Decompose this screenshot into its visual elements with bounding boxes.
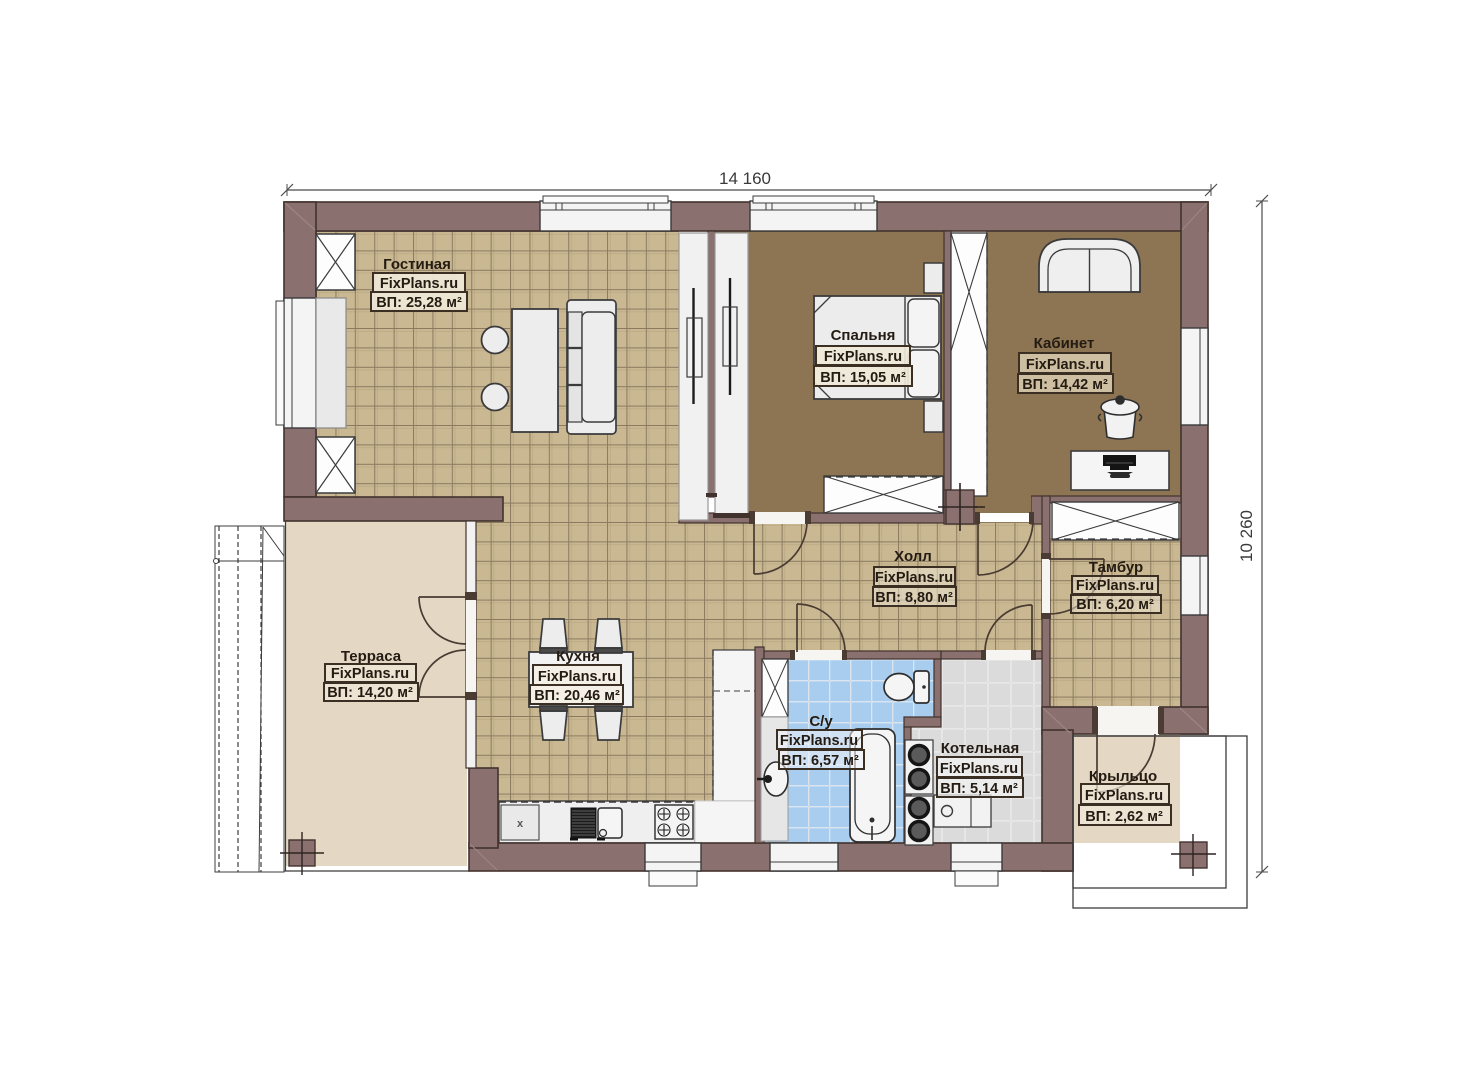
svg-text:ВП: 8,80 м²: ВП: 8,80 м² — [875, 590, 953, 606]
svg-text:Крыльцо: Крыльцо — [1089, 768, 1157, 785]
svg-text:10 260: 10 260 — [1237, 510, 1256, 562]
svg-text:FixPlans.ru: FixPlans.ru — [824, 349, 902, 365]
svg-text:FixPlans.ru: FixPlans.ru — [331, 666, 409, 682]
svg-text:FixPlans.ru: FixPlans.ru — [538, 669, 616, 685]
svg-text:FixPlans.ru: FixPlans.ru — [1076, 578, 1154, 594]
svg-text:ВП: 2,62 м²: ВП: 2,62 м² — [1085, 809, 1163, 825]
svg-text:x: x — [517, 818, 524, 830]
svg-text:FixPlans.ru: FixPlans.ru — [1085, 788, 1163, 804]
svg-text:ВП: 5,14 м²: ВП: 5,14 м² — [940, 781, 1018, 797]
svg-text:Котельная: Котельная — [941, 740, 1020, 757]
svg-text:ВП: 6,20 м²: ВП: 6,20 м² — [1076, 597, 1154, 613]
svg-text:ВП: 14,20 м²: ВП: 14,20 м² — [327, 685, 413, 701]
svg-text:FixPlans.ru: FixPlans.ru — [1026, 357, 1104, 373]
svg-text:Тамбур: Тамбур — [1089, 559, 1143, 576]
svg-text:Гостиная: Гостиная — [383, 256, 451, 273]
svg-text:ВП: 25,28 м²: ВП: 25,28 м² — [376, 295, 462, 311]
svg-text:Терраса: Терраса — [341, 648, 402, 665]
svg-text:Кабинет: Кабинет — [1034, 335, 1095, 352]
svg-text:ВП: 20,46 м²: ВП: 20,46 м² — [534, 688, 620, 704]
svg-text:14 160: 14 160 — [719, 169, 771, 188]
svg-text:FixPlans.ru: FixPlans.ru — [780, 733, 858, 749]
svg-text:ВП: 6,57 м²: ВП: 6,57 м² — [781, 753, 859, 769]
svg-text:С/у: С/у — [809, 713, 833, 730]
svg-text:Спальня: Спальня — [831, 327, 896, 344]
svg-text:FixPlans.ru: FixPlans.ru — [940, 761, 1018, 777]
svg-text:Кухня: Кухня — [556, 648, 600, 665]
svg-text:ВП: 15,05 м²: ВП: 15,05 м² — [820, 370, 906, 386]
svg-text:ВП: 14,42 м²: ВП: 14,42 м² — [1022, 377, 1108, 393]
svg-text:FixPlans.ru: FixPlans.ru — [380, 276, 458, 292]
svg-text:Холл: Холл — [894, 548, 932, 565]
svg-text:FixPlans.ru: FixPlans.ru — [875, 570, 953, 586]
